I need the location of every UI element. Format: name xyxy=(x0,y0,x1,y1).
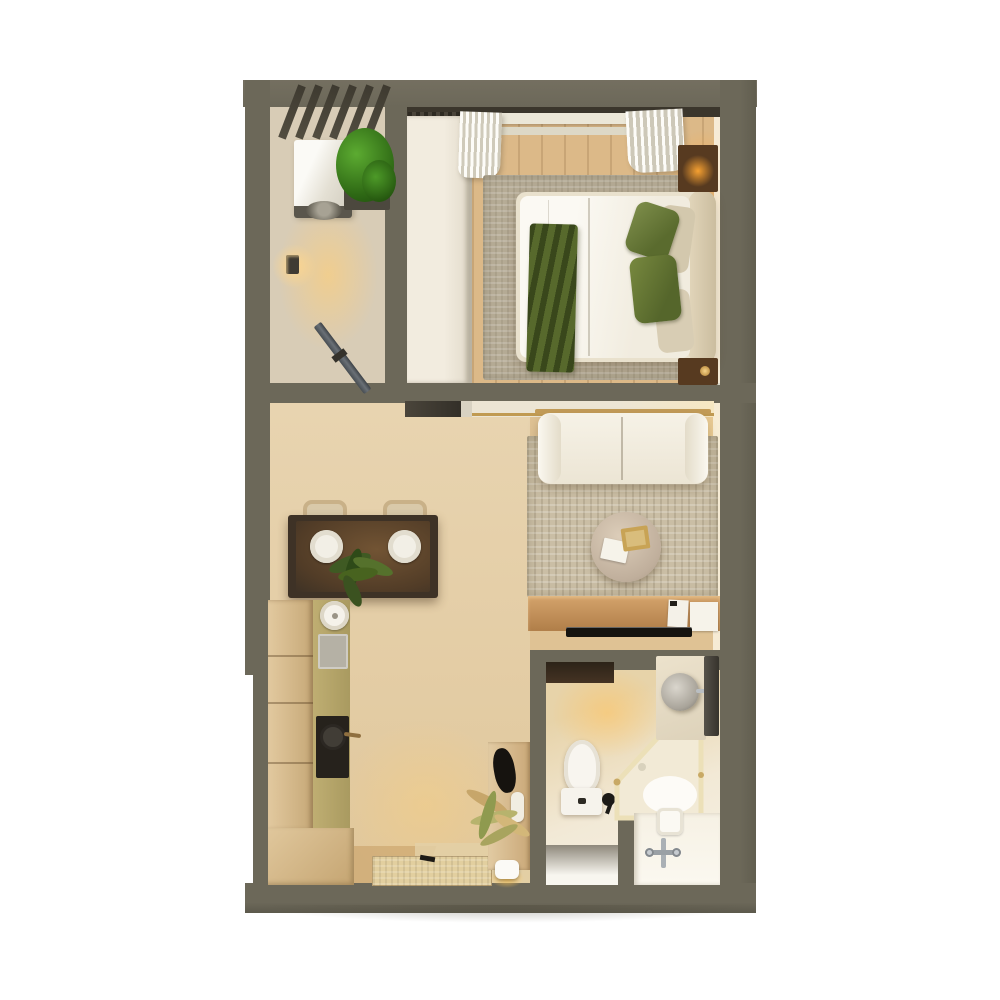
flat-tv xyxy=(566,627,692,637)
sofa-seam xyxy=(621,417,623,480)
gold-tray xyxy=(621,525,651,552)
toilet-bowl xyxy=(564,740,600,793)
door-step xyxy=(461,401,472,417)
duvet-fold xyxy=(588,198,590,356)
faucet-handle-right xyxy=(672,848,681,857)
sink-drain xyxy=(332,613,338,619)
toilet-flush-button xyxy=(578,798,586,804)
bathroom-stub-wall xyxy=(618,813,634,885)
vase xyxy=(511,792,524,822)
plan-shadow xyxy=(255,905,750,923)
sofa-armrest-left xyxy=(538,414,561,483)
washing-machine-drum xyxy=(306,201,342,220)
sliding-door-recess xyxy=(405,401,461,417)
bedroom-living-wall xyxy=(263,383,756,403)
bathroom-left-wall xyxy=(530,650,546,885)
balcony-plant-leaf xyxy=(362,160,396,202)
white-plate-left xyxy=(310,530,343,563)
soap-tray xyxy=(657,808,683,835)
towel-panel xyxy=(704,656,719,736)
nightstand-lamp xyxy=(700,366,710,376)
tall-cabinet-column xyxy=(268,600,313,830)
white-sofa xyxy=(538,413,708,484)
nightstand-lower xyxy=(678,358,718,385)
console-box xyxy=(690,602,718,631)
curtain-right xyxy=(625,109,685,174)
green-throw-blanket xyxy=(526,223,578,372)
cabinet-divider xyxy=(268,762,313,764)
cabinet-divider xyxy=(268,655,313,657)
left-wall-step xyxy=(245,675,253,883)
green-pillow-lower xyxy=(629,254,683,325)
round-basin xyxy=(661,673,699,711)
right-wall xyxy=(720,80,756,913)
white-plate-right xyxy=(388,530,421,563)
wall-sconce xyxy=(286,255,299,274)
floor-plan xyxy=(0,0,1000,1000)
bathroom-door-niche xyxy=(546,845,618,885)
faucet-handle-left xyxy=(645,848,654,857)
cabinet-divider xyxy=(268,702,313,704)
sofa-armrest-right xyxy=(685,414,708,483)
pan xyxy=(320,724,346,750)
console-remote xyxy=(670,601,677,606)
nightstand-upper xyxy=(678,145,718,192)
robot-vacuum xyxy=(495,860,519,879)
curtain-left xyxy=(458,111,502,178)
cutting-board xyxy=(318,634,348,669)
dark-shelf xyxy=(546,662,614,683)
corner-cabinet xyxy=(268,828,354,885)
